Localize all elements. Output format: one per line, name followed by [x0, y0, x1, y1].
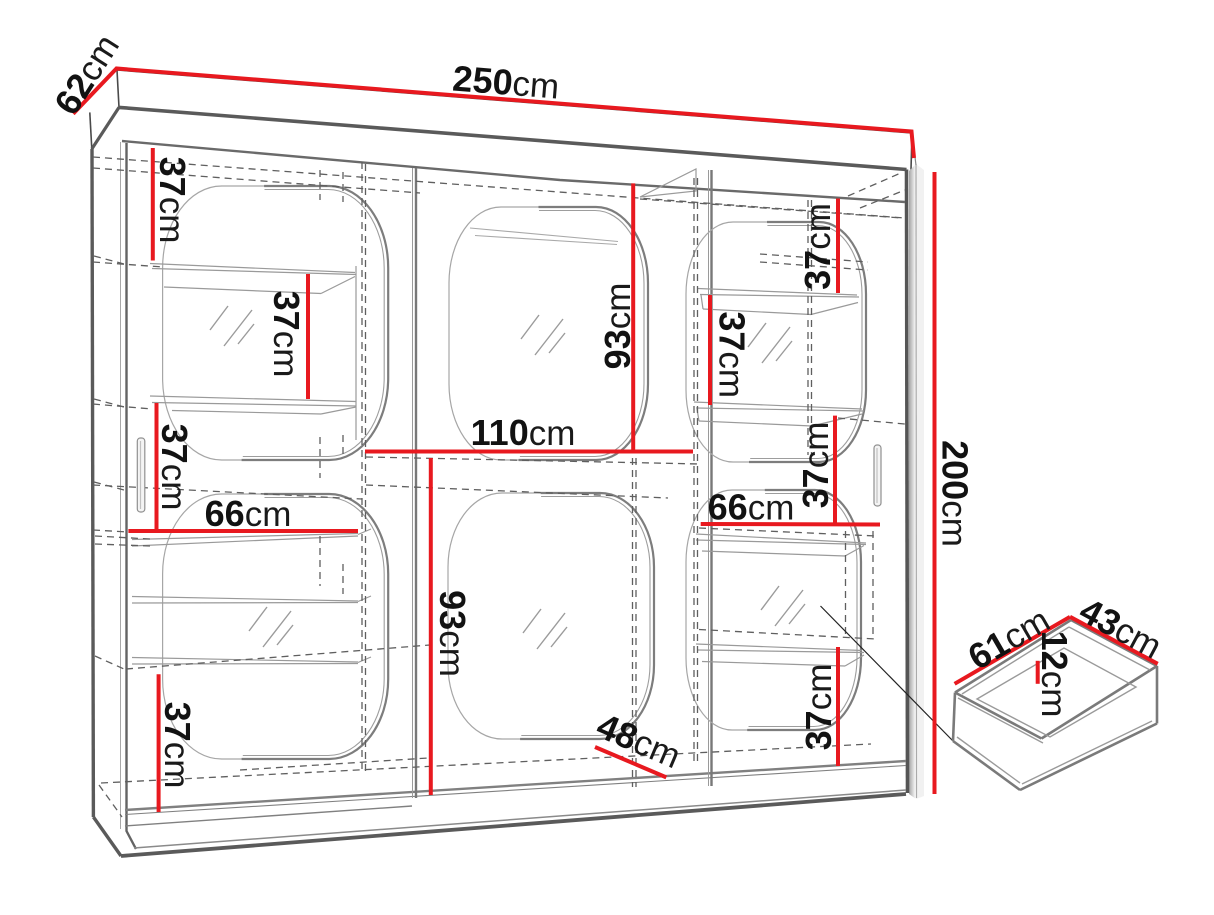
svg-text:66cm: 66cm [205, 493, 292, 534]
svg-text:66cm: 66cm [708, 487, 795, 528]
svg-text:37cm: 37cm [795, 422, 836, 509]
svg-text:110cm: 110cm [471, 412, 576, 453]
svg-text:200cm: 200cm [935, 440, 976, 547]
svg-text:37cm: 37cm [154, 424, 195, 511]
svg-text:37cm: 37cm [266, 291, 307, 378]
svg-text:93cm: 93cm [432, 590, 473, 677]
svg-text:37cm: 37cm [797, 203, 838, 290]
svg-text:37cm: 37cm [798, 664, 839, 751]
svg-text:37cm: 37cm [152, 157, 193, 244]
svg-text:37cm: 37cm [157, 702, 198, 789]
svg-text:93cm: 93cm [597, 283, 638, 370]
svg-text:12cm: 12cm [1034, 631, 1075, 718]
svg-text:37cm: 37cm [712, 311, 753, 398]
